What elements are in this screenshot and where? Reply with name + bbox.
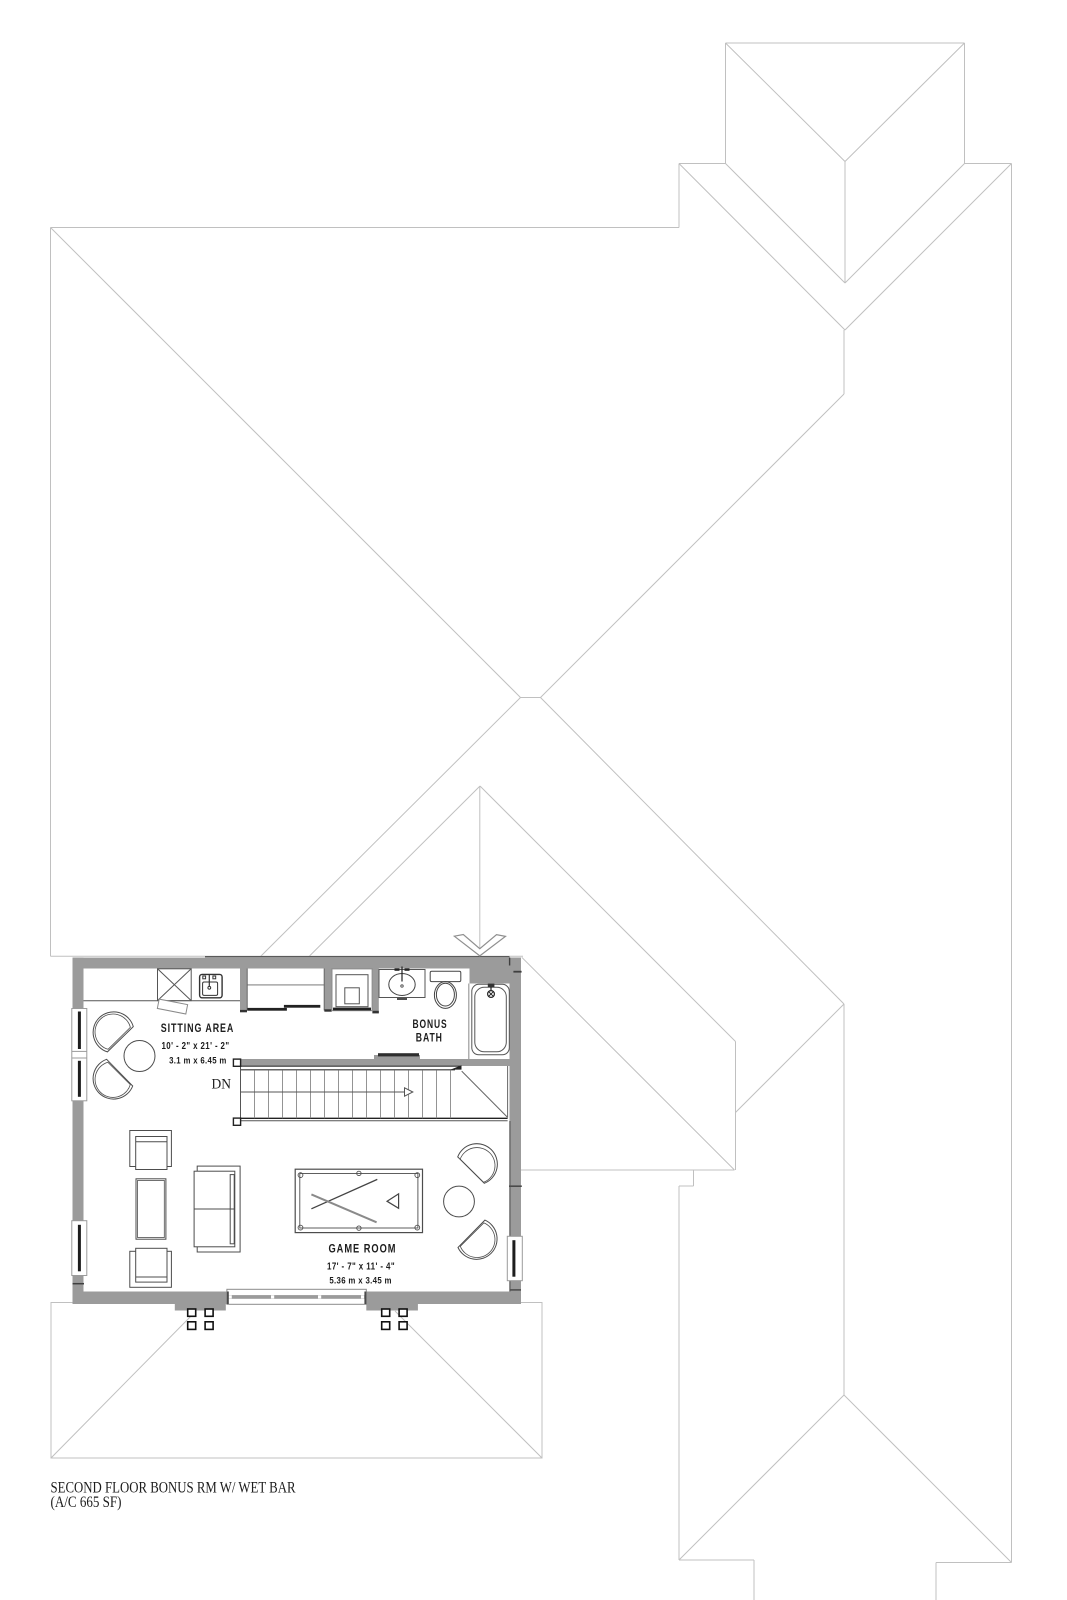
svg-text:17' - 7" x 11' - 4": 17' - 7" x 11' - 4" <box>327 1261 395 1272</box>
svg-text:GAME ROOM: GAME ROOM <box>329 1243 397 1255</box>
svg-text:5.36 m x 3.45 m: 5.36 m x 3.45 m <box>329 1276 392 1287</box>
svg-text:SITTING AREA: SITTING AREA <box>161 1023 235 1035</box>
svg-text:BONUS: BONUS <box>413 1019 448 1031</box>
svg-text:DN: DN <box>212 1077 232 1093</box>
svg-text:BATH: BATH <box>416 1033 443 1045</box>
svg-text:3.1 m x 6.45 m: 3.1 m x 6.45 m <box>169 1055 227 1066</box>
svg-text:(A/C 665 SF): (A/C 665 SF) <box>51 1494 122 1511</box>
svg-text:10' - 2" x 21' - 2": 10' - 2" x 21' - 2" <box>162 1041 230 1052</box>
